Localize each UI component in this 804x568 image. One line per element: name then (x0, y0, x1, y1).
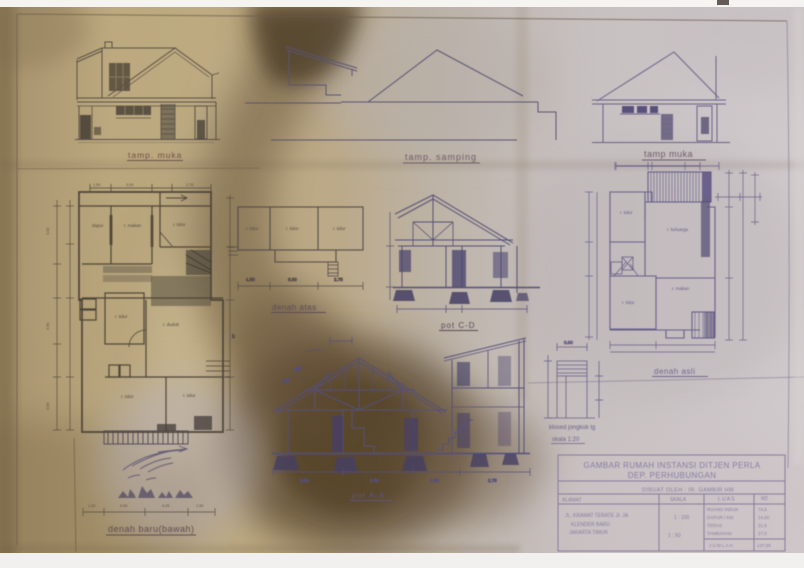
svg-text:denah baru(bawah): denah baru(bawah) (108, 524, 195, 534)
svg-text:3.00: 3.00 (126, 183, 133, 187)
svg-text:r. tidur: r. tidur (333, 226, 346, 231)
svg-text:DAPUR / KM: DAPUR / KM (707, 515, 734, 520)
svg-text:DEP. PERHUBUNGAN: DEP. PERHUBUNGAN (628, 471, 717, 480)
svg-text:4.50: 4.50 (46, 323, 50, 330)
svg-text:r. tidur: r. tidur (246, 226, 259, 231)
svg-text:74,5: 74,5 (758, 507, 767, 512)
svg-text:1.50: 1.50 (196, 504, 203, 508)
svg-text:pot A-A: pot A-A (352, 491, 385, 500)
svg-text:denah atas: denah atas (272, 303, 317, 312)
svg-text:tamp muka: tamp muka (644, 149, 693, 159)
svg-text:KLENDER BARU: KLENDER BARU (571, 522, 610, 528)
svg-text:2.75: 2.75 (334, 277, 343, 282)
svg-text:3.00: 3.00 (288, 277, 297, 282)
svg-text:pot C-D: pot C-D (441, 321, 476, 330)
svg-text:1 : 50: 1 : 50 (668, 533, 681, 539)
svg-text:3.00: 3.00 (46, 228, 50, 235)
svg-text:0.90: 0.90 (564, 340, 573, 345)
svg-text:M2: M2 (761, 496, 768, 502)
svg-text:2.75: 2.75 (488, 478, 497, 483)
svg-text:klosed jongkok tg: klosed jongkok tg (549, 425, 595, 431)
svg-text:r. tidur: r. tidur (183, 393, 196, 398)
svg-text:GAMBAR RUMAH INSTANSI DITJEN P: GAMBAR RUMAH INSTANSI DITJEN PERLA (583, 461, 760, 470)
svg-text:RUANG INDUK: RUANG INDUK (707, 507, 739, 512)
svg-text:3.00: 3.00 (370, 478, 379, 483)
svg-text:r. duduk: r. duduk (163, 322, 180, 327)
svg-text:27,0: 27,0 (758, 531, 767, 536)
svg-text:ALAMAT: ALAMAT (562, 498, 582, 504)
svg-text:J U M L A H: J U M L A H (709, 543, 733, 548)
svg-text:skala 1:20: skala 1:20 (552, 437, 580, 443)
svg-text:JAKARTA TIMUR: JAKARTA TIMUR (569, 530, 608, 536)
svg-text:1.50: 1.50 (246, 277, 255, 282)
svg-text:L U A S: L U A S (718, 497, 735, 503)
svg-text:dapur: dapur (92, 223, 104, 228)
svg-text:r. keluarga: r. keluarga (667, 227, 689, 232)
svg-text:SKALA: SKALA (670, 497, 687, 503)
svg-text:TAMBAHAN: TAMBAHAN (707, 531, 732, 536)
svg-text:3.00: 3.00 (300, 478, 309, 483)
svg-text:r. makan: r. makan (124, 223, 142, 228)
svg-text:r. tidur: r. tidur (622, 300, 635, 305)
svg-text:r. tidur: r. tidur (115, 314, 128, 319)
svg-text:1.50: 1.50 (88, 504, 95, 508)
svg-text:14,50: 14,50 (758, 515, 770, 520)
svg-text:3.00: 3.00 (46, 403, 50, 410)
svg-text:1.50: 1.50 (430, 478, 439, 483)
svg-text:4.25: 4.25 (162, 504, 169, 508)
svg-text:denah asli: denah asli (654, 367, 695, 376)
svg-text:4.00: 4.00 (120, 504, 127, 508)
svg-text:1 : 100: 1 : 100 (674, 515, 690, 521)
svg-text:b: b (232, 334, 235, 340)
svg-text:r. tidur: r. tidur (620, 210, 633, 215)
svg-text:tamp. muka: tamp. muka (128, 150, 182, 160)
svg-text:137,50: 137,50 (757, 543, 771, 548)
svg-text:1.50: 1.50 (93, 183, 100, 187)
svg-text:2.75: 2.75 (186, 183, 193, 187)
svg-text:21,5: 21,5 (758, 523, 767, 528)
svg-text:JL. KRAMAT TERATE JI- JA: JL. KRAMAT TERATE JI- JA (565, 513, 629, 519)
svg-text:r. tidur: r. tidur (173, 222, 186, 227)
svg-text:DIBUAT OLEH : IR. GAMBIR HM: DIBUAT OLEH : IR. GAMBIR HM (642, 488, 734, 494)
svg-text:TERAS: TERAS (707, 523, 722, 528)
svg-text:r. tidur: r. tidur (121, 394, 134, 399)
svg-text:tamp. samping: tamp. samping (405, 152, 477, 162)
svg-text:r. tidur: r. tidur (286, 226, 299, 231)
svg-text:r. makan: r. makan (672, 286, 690, 291)
